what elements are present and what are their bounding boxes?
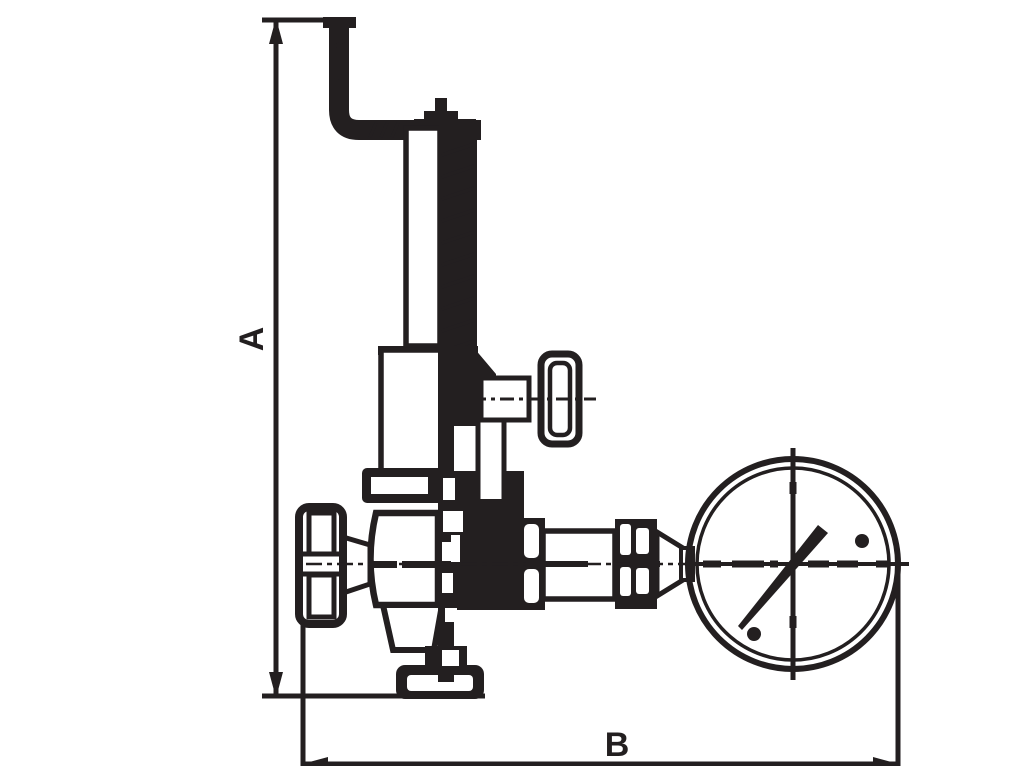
technical-drawing: A B	[40, 16, 1024, 766]
gauge-screw-dot-left	[747, 627, 761, 641]
outlet-funnel	[383, 605, 442, 650]
gauge-needle	[738, 525, 828, 630]
side-pipe-elbow	[478, 420, 504, 504]
dimension-a-label: A	[233, 327, 271, 352]
gauge-screw-dot-right	[855, 534, 869, 548]
dimension-b-label: B	[605, 726, 630, 764]
adjustment-spring	[439, 123, 477, 359]
mid-body	[381, 350, 441, 474]
top-flange	[362, 468, 443, 503]
valve-drawing-canvas: A B	[40, 16, 1024, 766]
main-body	[371, 513, 439, 605]
valve-assembly	[299, 17, 693, 699]
inlet-handwheel	[299, 507, 343, 624]
pressure-gauge	[685, 448, 909, 680]
spring-bonnet-tube	[406, 128, 440, 346]
